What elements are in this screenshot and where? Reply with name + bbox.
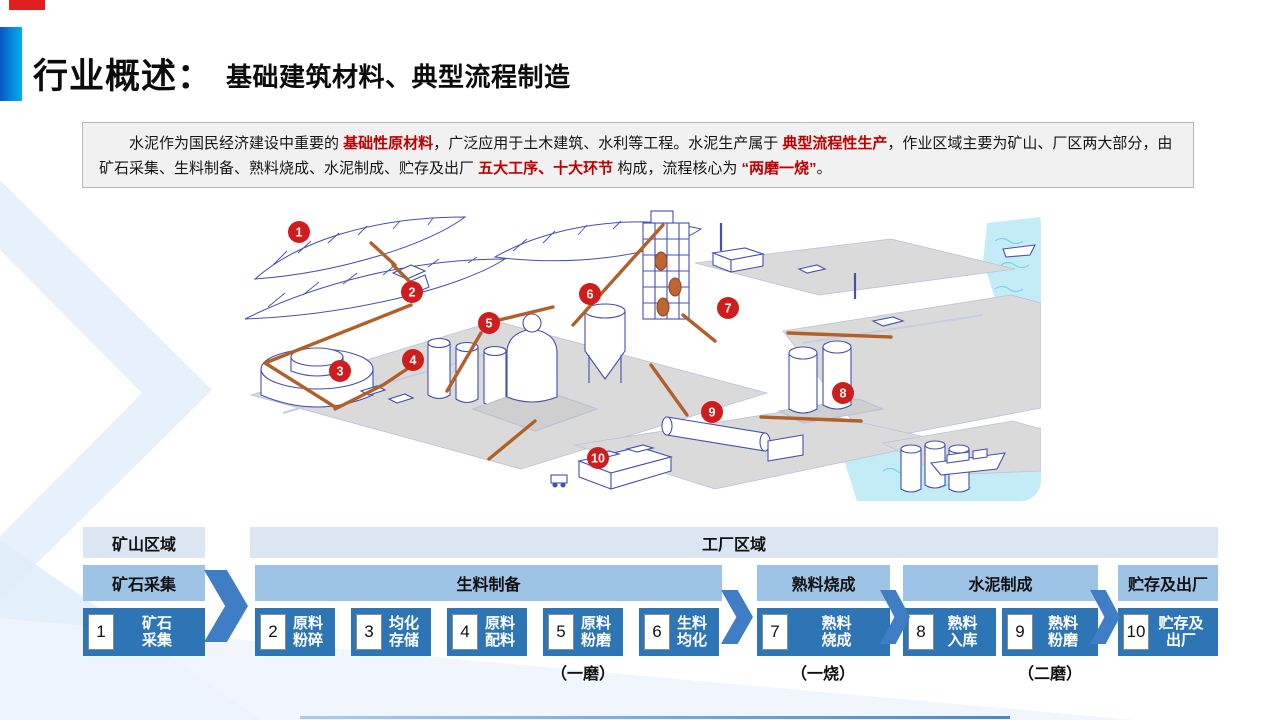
flow-stage-bar: 贮存及出厂	[1118, 565, 1218, 601]
left-decoration-chevron-notch	[0, 250, 142, 536]
flow-step-label: 熟料入库	[934, 615, 991, 649]
flow-step-number: 3	[356, 614, 382, 650]
intro-run: 。	[817, 160, 832, 177]
flow-step: 9熟料粉磨	[1002, 608, 1098, 656]
flow-stage-bar: 生料制备	[255, 565, 722, 601]
top-red-accent	[9, 0, 45, 10]
flow-step: 7熟料烧成	[757, 608, 890, 656]
flow-stage-bar: 熟料烧成	[757, 565, 890, 601]
quarry-terraces	[245, 217, 701, 319]
flow-step-label: 矿石采集	[114, 615, 200, 649]
flow-step-number: 8	[908, 614, 934, 650]
diagram-marker-number: 5	[486, 317, 493, 331]
flow-step-number: 10	[1123, 614, 1149, 650]
slide-canvas: 行业概述： 基础建筑材料、典型流程制造 水泥作为国民经济建设中重要的 基础性原材…	[0, 0, 1280, 720]
diagram-marker-number: 3	[337, 365, 344, 379]
flow-step: 4原料配料	[447, 608, 527, 656]
intro-run: ，广泛应用于土木建筑、水利等工程。水泥生产属于	[433, 135, 782, 152]
intro-run: 构成，流程核心为	[613, 160, 741, 177]
flow-step: 3均化存储	[351, 608, 431, 656]
flow-step-number: 1	[88, 614, 114, 650]
intro-run: 水泥作为国民经济建设中重要的	[129, 135, 343, 152]
flow-step: 8熟料入库	[903, 608, 996, 656]
diagram-marker-number: 10	[591, 452, 605, 466]
diagram-marker-number: 4	[410, 354, 417, 368]
intro-highlight: 典型流程性生产	[782, 135, 887, 152]
diagram-marker-number: 1	[296, 226, 303, 240]
flow-arrow-icon	[204, 570, 248, 642]
flow-step-label: 贮存及出厂	[1149, 615, 1213, 649]
flow-note: （二磨）	[1018, 660, 1082, 684]
flow-step: 2原料粉碎	[255, 608, 335, 656]
title-accent-bar	[0, 27, 22, 101]
flow-step-number: 6	[644, 614, 670, 650]
flow-step-number: 5	[548, 614, 574, 650]
flow-step-number: 9	[1007, 614, 1033, 650]
page-title: 行业概述：	[33, 48, 213, 99]
flow-arrow-icon	[721, 590, 753, 644]
flow-stage-bar: 水泥制成	[903, 565, 1098, 601]
flow-step-label: 均化存储	[382, 615, 426, 649]
flow-step: 5原料粉磨	[543, 608, 623, 656]
page-subtitle: 基础建筑材料、典型流程制造	[226, 57, 571, 94]
flow-step-number: 4	[452, 614, 478, 650]
diagram-marker-number: 8	[840, 387, 847, 401]
flow-step-number: 7	[762, 614, 788, 650]
intro-highlight: “两磨一烧”	[742, 160, 817, 177]
flow-step: 1矿石采集	[83, 608, 205, 656]
intro-text: 水泥作为国民经济建设中重要的 基础性原材料，广泛应用于土木建筑、水利等工程。水泥…	[99, 131, 1177, 181]
flow-step-number: 2	[260, 614, 286, 650]
flow-step-label: 原料粉磨	[574, 615, 618, 649]
flow-step-label: 原料配料	[478, 615, 522, 649]
flow-step-label: 熟料粉磨	[1033, 615, 1093, 649]
intro-box: 水泥作为国民经济建设中重要的 基础性原材料，广泛应用于土木建筑、水利等工程。水泥…	[82, 122, 1194, 188]
flow-step-label: 生料均化	[670, 615, 714, 649]
flow-step-label: 原料粉碎	[286, 615, 330, 649]
bottom-accent-line	[300, 716, 1010, 719]
diagram-marker-number: 7	[725, 302, 732, 316]
flow-note: （一烧）	[791, 660, 855, 684]
flow-stage-bar: 矿石采集	[83, 565, 205, 601]
flow-step: 6生料均化	[639, 608, 719, 656]
flow-region-bar: 矿山区域	[83, 527, 205, 558]
intro-highlight: 五大工序、十大环节	[478, 160, 613, 177]
flow-step-label: 熟料烧成	[788, 615, 885, 649]
flow-note: （一磨）	[551, 660, 615, 684]
flow-region-bar: 工厂区域	[250, 527, 1218, 558]
diagram-marker-number: 9	[709, 406, 716, 420]
flow-step: 10贮存及出厂	[1118, 608, 1218, 656]
diagram-marker-number: 2	[409, 286, 416, 300]
cement-plant-diagram: 12345678910	[243, 203, 1041, 501]
diagram-marker-number: 6	[587, 288, 594, 302]
intro-highlight: 基础性原材料	[343, 135, 433, 152]
